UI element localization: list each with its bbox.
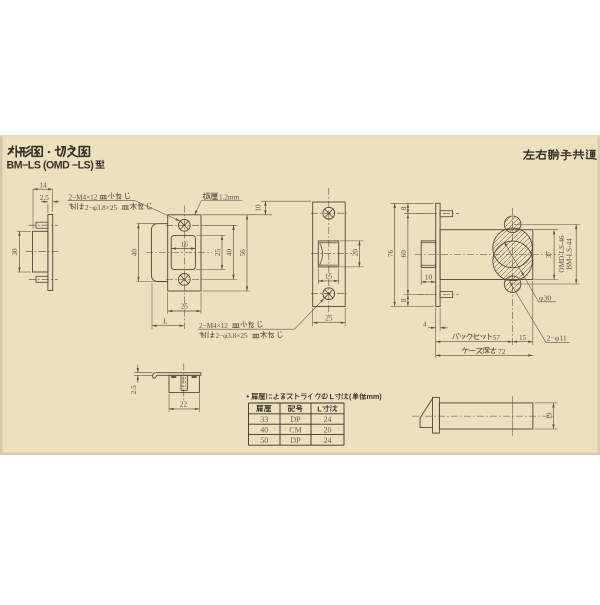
svg-text:20: 20 [352, 249, 360, 257]
svg-text:8: 8 [400, 206, 408, 210]
svg-text:CM: CM [289, 425, 301, 434]
svg-text:1.2mm: 1.2mm [219, 194, 240, 202]
svg-text:2−φ3.8×25: 2−φ3.8×25 [85, 204, 117, 212]
svg-text:33: 33 [260, 415, 268, 424]
svg-text:2−φ3.8×25: 2−φ3.8×25 [216, 332, 248, 340]
svg-text:20: 20 [324, 425, 332, 434]
svg-text:76: 76 [387, 250, 395, 258]
svg-text:24: 24 [324, 415, 332, 424]
svg-text:2−M4×12: 2−M4×12 [199, 322, 228, 330]
svg-text:BM-LS-44: BM-LS-44 [566, 238, 574, 270]
svg-text:37: 37 [545, 251, 553, 259]
svg-text:40: 40 [226, 248, 234, 256]
svg-text:DP: DP [290, 436, 301, 445]
svg-text:56: 56 [239, 249, 247, 257]
svg-text:2.5: 2.5 [40, 194, 49, 202]
svg-text:14: 14 [39, 181, 47, 189]
svg-text:25: 25 [214, 249, 222, 257]
svg-text:15: 15 [519, 334, 527, 342]
svg-text:L: L [163, 317, 167, 325]
svg-text:15: 15 [325, 273, 333, 281]
svg-text:50: 50 [260, 436, 268, 445]
svg-text:24: 24 [324, 436, 332, 445]
svg-text:60: 60 [400, 250, 408, 258]
svg-text:19: 19 [546, 412, 554, 420]
svg-text:25: 25 [325, 314, 333, 322]
svg-text:8: 8 [400, 298, 408, 302]
svg-text:DP: DP [290, 415, 301, 424]
svg-text:22: 22 [180, 401, 188, 409]
svg-text:L: L [330, 392, 335, 401]
svg-text:2−M4×12: 2−M4×12 [69, 193, 98, 201]
svg-text:10: 10 [425, 274, 433, 282]
svg-text:4: 4 [423, 320, 427, 328]
svg-text:2−φ11: 2−φ11 [547, 334, 567, 343]
svg-text:25: 25 [181, 303, 189, 311]
svg-text:BM−LS (OMD −LS): BM−LS (OMD −LS) [7, 159, 94, 171]
svg-text:L: L [317, 404, 322, 413]
svg-text:40: 40 [260, 425, 268, 434]
svg-text:16: 16 [181, 240, 189, 248]
svg-text:57: 57 [493, 333, 501, 342]
svg-text:30: 30 [11, 248, 19, 256]
svg-text:φ30: φ30 [539, 293, 551, 302]
svg-text:mm): mm) [367, 392, 383, 401]
svg-text:2.5: 2.5 [130, 385, 138, 394]
svg-text:72: 72 [498, 347, 506, 356]
svg-text:40: 40 [130, 249, 138, 257]
svg-text:10: 10 [255, 204, 263, 212]
